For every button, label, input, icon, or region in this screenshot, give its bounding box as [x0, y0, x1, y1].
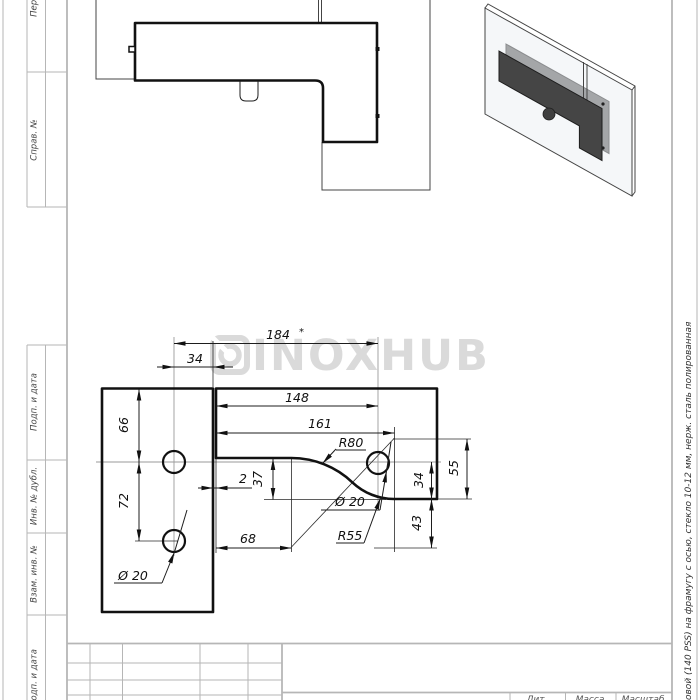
fitting-pin-knob: [543, 108, 555, 120]
bracket-right-screw-top: [376, 47, 380, 51]
bracket-left-notch: [129, 47, 135, 53]
dim-r80: R80: [339, 435, 364, 450]
dim-dia20-right: Ø 20: [334, 494, 365, 509]
dim-184-star: *: [299, 327, 304, 338]
isometric-view: [485, 4, 635, 196]
margin-box-vzam-inv-no: Взам. инв. №: [30, 545, 40, 603]
title-block-mass-label: Масса: [576, 695, 605, 700]
title-block: Лит. Масса Масштаб: [67, 644, 672, 700]
dim-r55: R55: [338, 528, 363, 543]
dim-161: 161: [308, 416, 332, 431]
leader-lines: [114, 442, 391, 583]
dim-148: 148: [285, 390, 309, 405]
margin-box-sprav-no: Справ. №: [30, 119, 40, 161]
left-margin-labels: Перв. примен. Справ. № Подп. и дата Инв.…: [30, 0, 40, 700]
bracket-outline: [135, 23, 377, 142]
product-description-text: овой (140 PSS) на фрамугу с осью, стекло…: [684, 321, 694, 700]
front-view: [96, 0, 430, 190]
dim-34: 34: [187, 351, 203, 366]
margin-box-inv-no-dubl: Инв. № дубл.: [30, 467, 40, 525]
screw-dot-bottom: [601, 146, 604, 149]
dim-66: 66: [116, 417, 131, 433]
bracket-right-screw-bottom: [376, 114, 380, 118]
dim-dia20-left: Ø 20: [117, 568, 148, 583]
inoxhub-watermark: INOXHUB: [209, 331, 490, 381]
title-block-lit-label: Лит.: [526, 695, 548, 700]
dim-68: 68: [240, 531, 256, 546]
dim-34-right: 34: [411, 472, 426, 488]
inoxhub-logo-icon: [209, 334, 247, 372]
engineering-drawing-sheet: INOXHUB Перв. примен. Справ. № Подп. и д…: [0, 0, 700, 700]
dim-72: 72: [116, 493, 131, 509]
margin-box-podp-i-data: Подп. и дата: [30, 373, 40, 431]
dim-184: 184: [266, 327, 290, 342]
dim-37: 37: [250, 471, 265, 487]
dim-43: 43: [409, 515, 424, 531]
dim-55: 55: [446, 460, 461, 476]
screw-dot-top: [601, 102, 604, 105]
margin-box-perv-primen: Перв. примен.: [30, 0, 40, 17]
bracket-pin-tab: [240, 81, 258, 101]
glass-joint-lines: [319, 0, 322, 22]
title-block-scale-label: Масштаб: [622, 695, 665, 700]
glass-panel-left-outline: [96, 0, 137, 79]
margin-box-podp-i-data-2: Подп. и дата: [30, 649, 40, 700]
right-margin-description: овой (140 PSS) на фрамугу с осью, стекло…: [684, 321, 694, 700]
dim-2: 2: [239, 471, 247, 486]
